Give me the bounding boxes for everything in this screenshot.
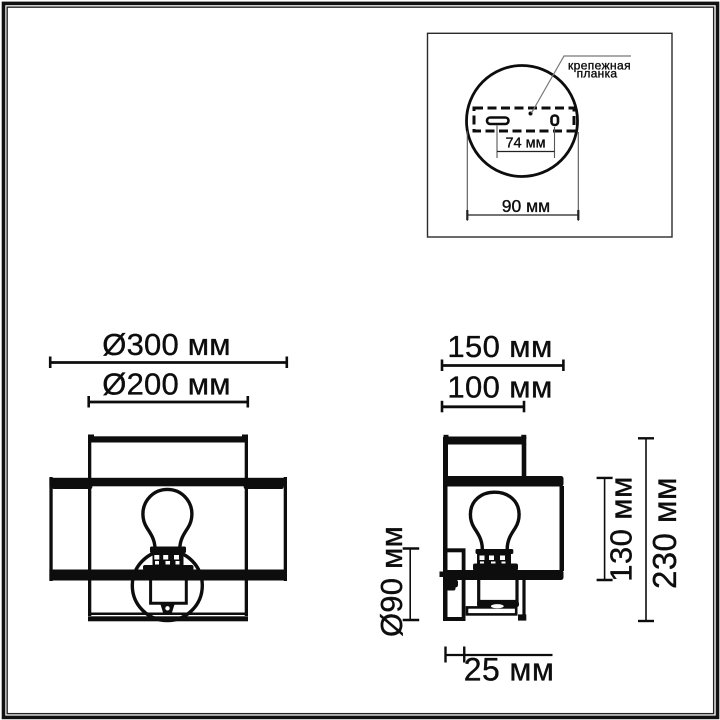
svg-text:230 мм: 230 мм — [646, 477, 683, 589]
svg-text:90 мм: 90 мм — [502, 196, 550, 216]
svg-text:Ø90 мм: Ø90 мм — [374, 526, 409, 637]
svg-text:130 мм: 130 мм — [604, 476, 639, 581]
svg-text:планка: планка — [577, 67, 618, 81]
svg-text:25 мм: 25 мм — [464, 652, 554, 688]
svg-text:Ø300 мм: Ø300 мм — [102, 327, 230, 362]
svg-text:100 мм: 100 мм — [447, 370, 552, 405]
svg-text:Ø200 мм: Ø200 мм — [102, 367, 230, 402]
svg-text:150 мм: 150 мм — [447, 329, 552, 364]
svg-text:74 мм: 74 мм — [505, 136, 545, 152]
